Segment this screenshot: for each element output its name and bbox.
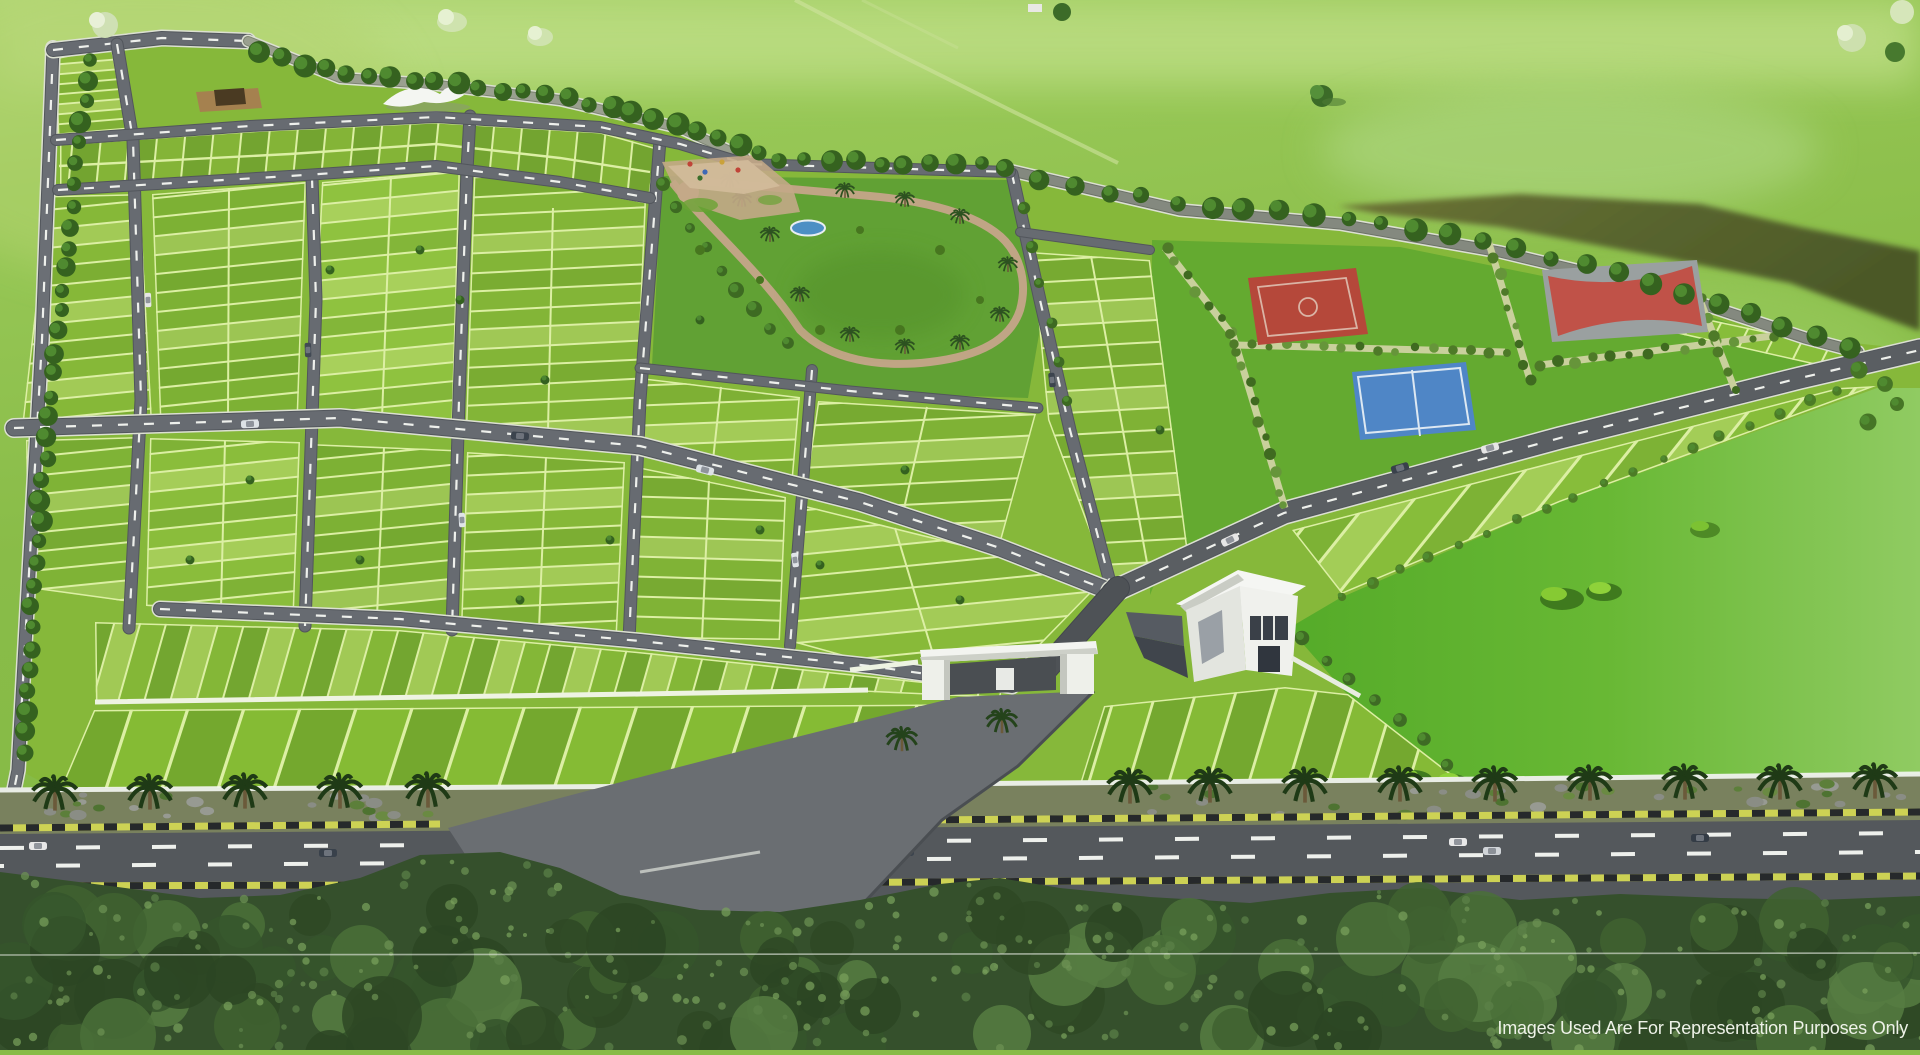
svg-text:Images Used Are For Representa: Images Used Are For Representation Purpo… (1497, 1018, 1908, 1038)
